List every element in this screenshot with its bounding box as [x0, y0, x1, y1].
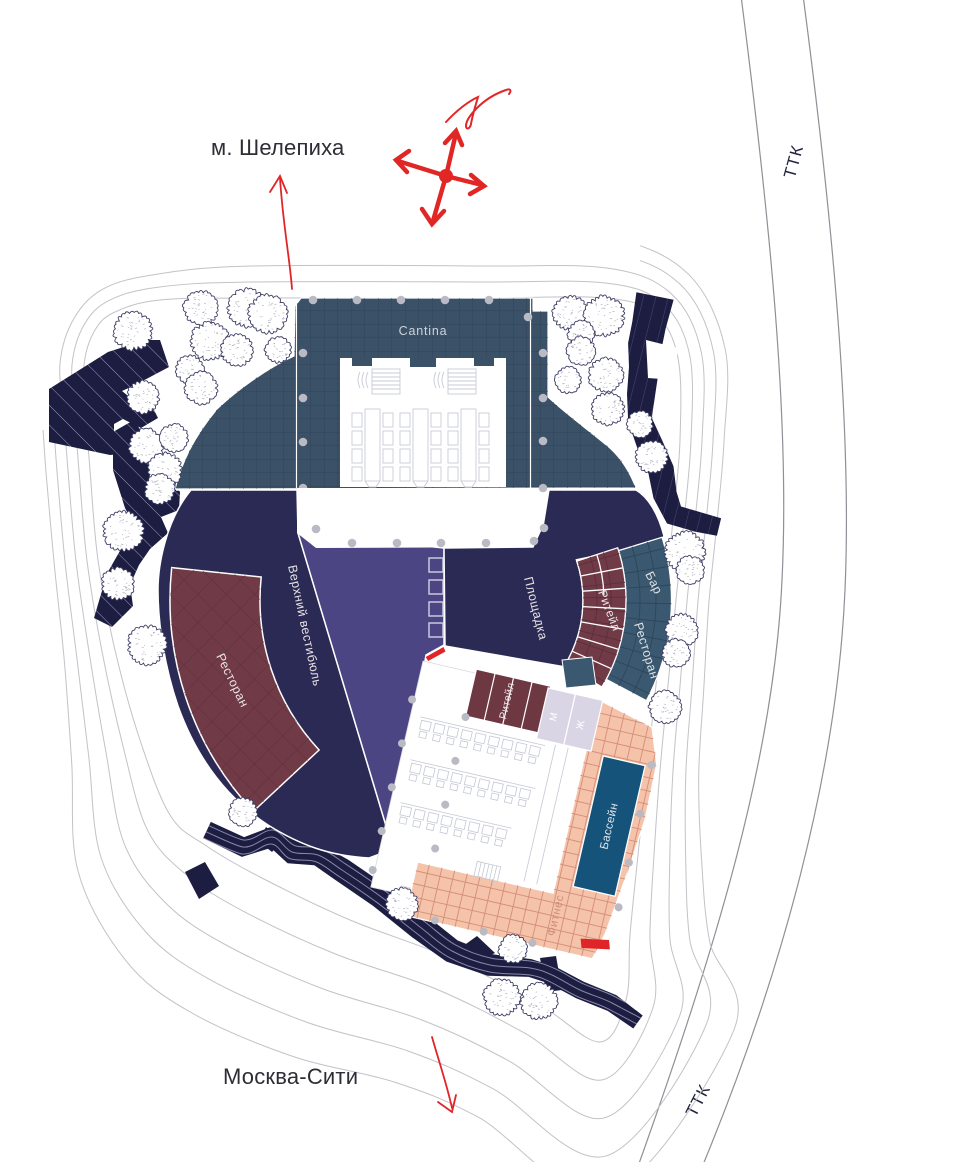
svg-text:Москва-Сити: Москва-Сити	[223, 1064, 358, 1089]
svg-text:м. Шелепиха: м. Шелепиха	[211, 135, 345, 160]
svg-text:Cantina: Cantina	[399, 324, 448, 338]
